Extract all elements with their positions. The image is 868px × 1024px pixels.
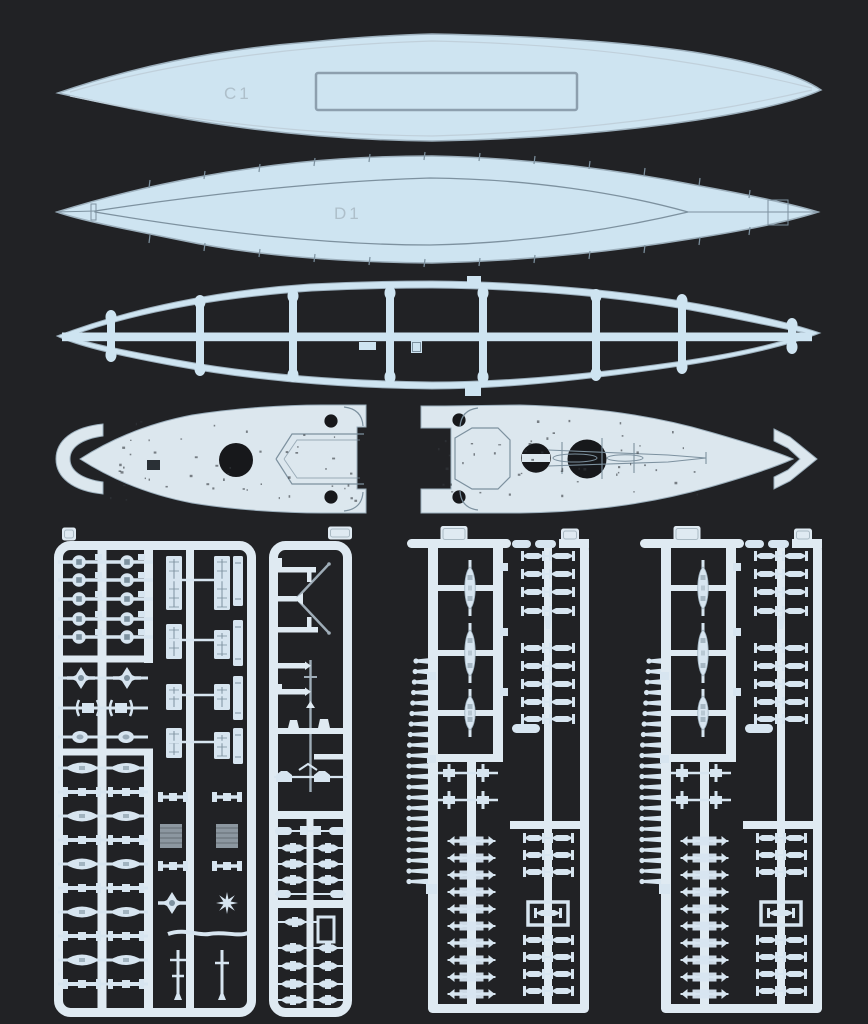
svg-text:D1: D1 xyxy=(334,204,362,223)
svg-text:C1: C1 xyxy=(224,84,252,103)
